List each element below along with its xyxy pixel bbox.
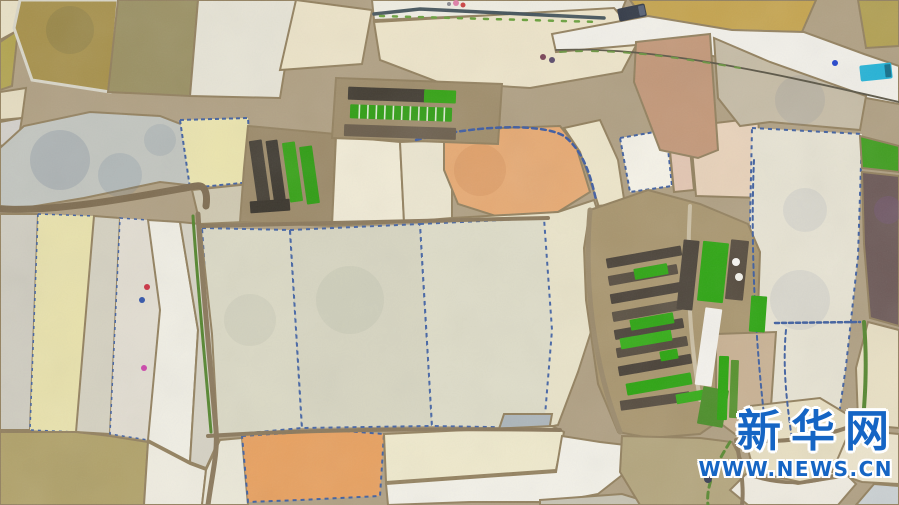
photo-grain-texture — [0, 0, 899, 505]
aerial-photo-frame: 新华网 WWW.NEWS.CN — [0, 0, 899, 505]
aerial-photo — [0, 0, 899, 505]
